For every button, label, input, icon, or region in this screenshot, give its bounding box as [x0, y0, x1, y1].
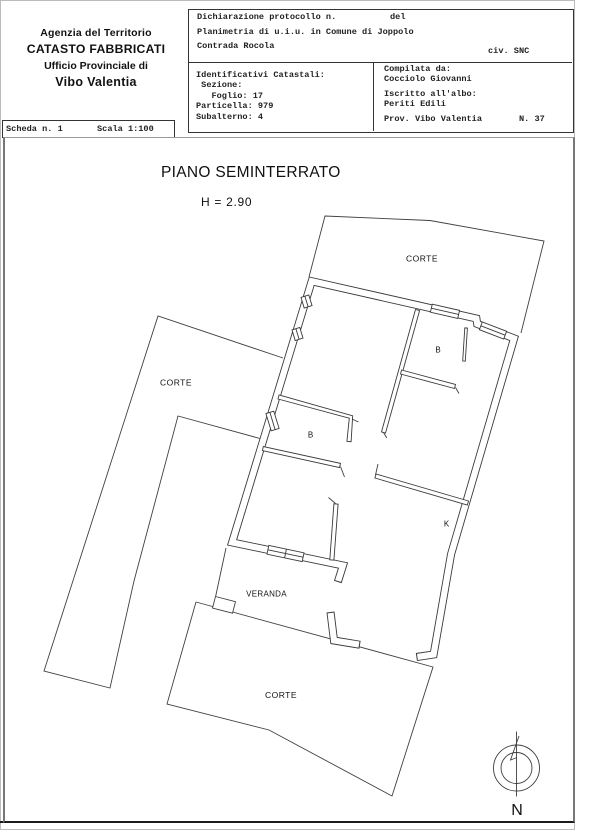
svg-text:B: B: [308, 431, 313, 440]
svg-text:B: B: [435, 346, 440, 355]
svg-text:CORTE: CORTE: [160, 378, 192, 388]
svg-text:N: N: [511, 802, 523, 819]
svg-text:VERANDA: VERANDA: [246, 590, 287, 599]
svg-text:CORTE: CORTE: [406, 254, 438, 264]
svg-text:CORTE: CORTE: [265, 690, 297, 700]
svg-text:K: K: [444, 520, 450, 529]
